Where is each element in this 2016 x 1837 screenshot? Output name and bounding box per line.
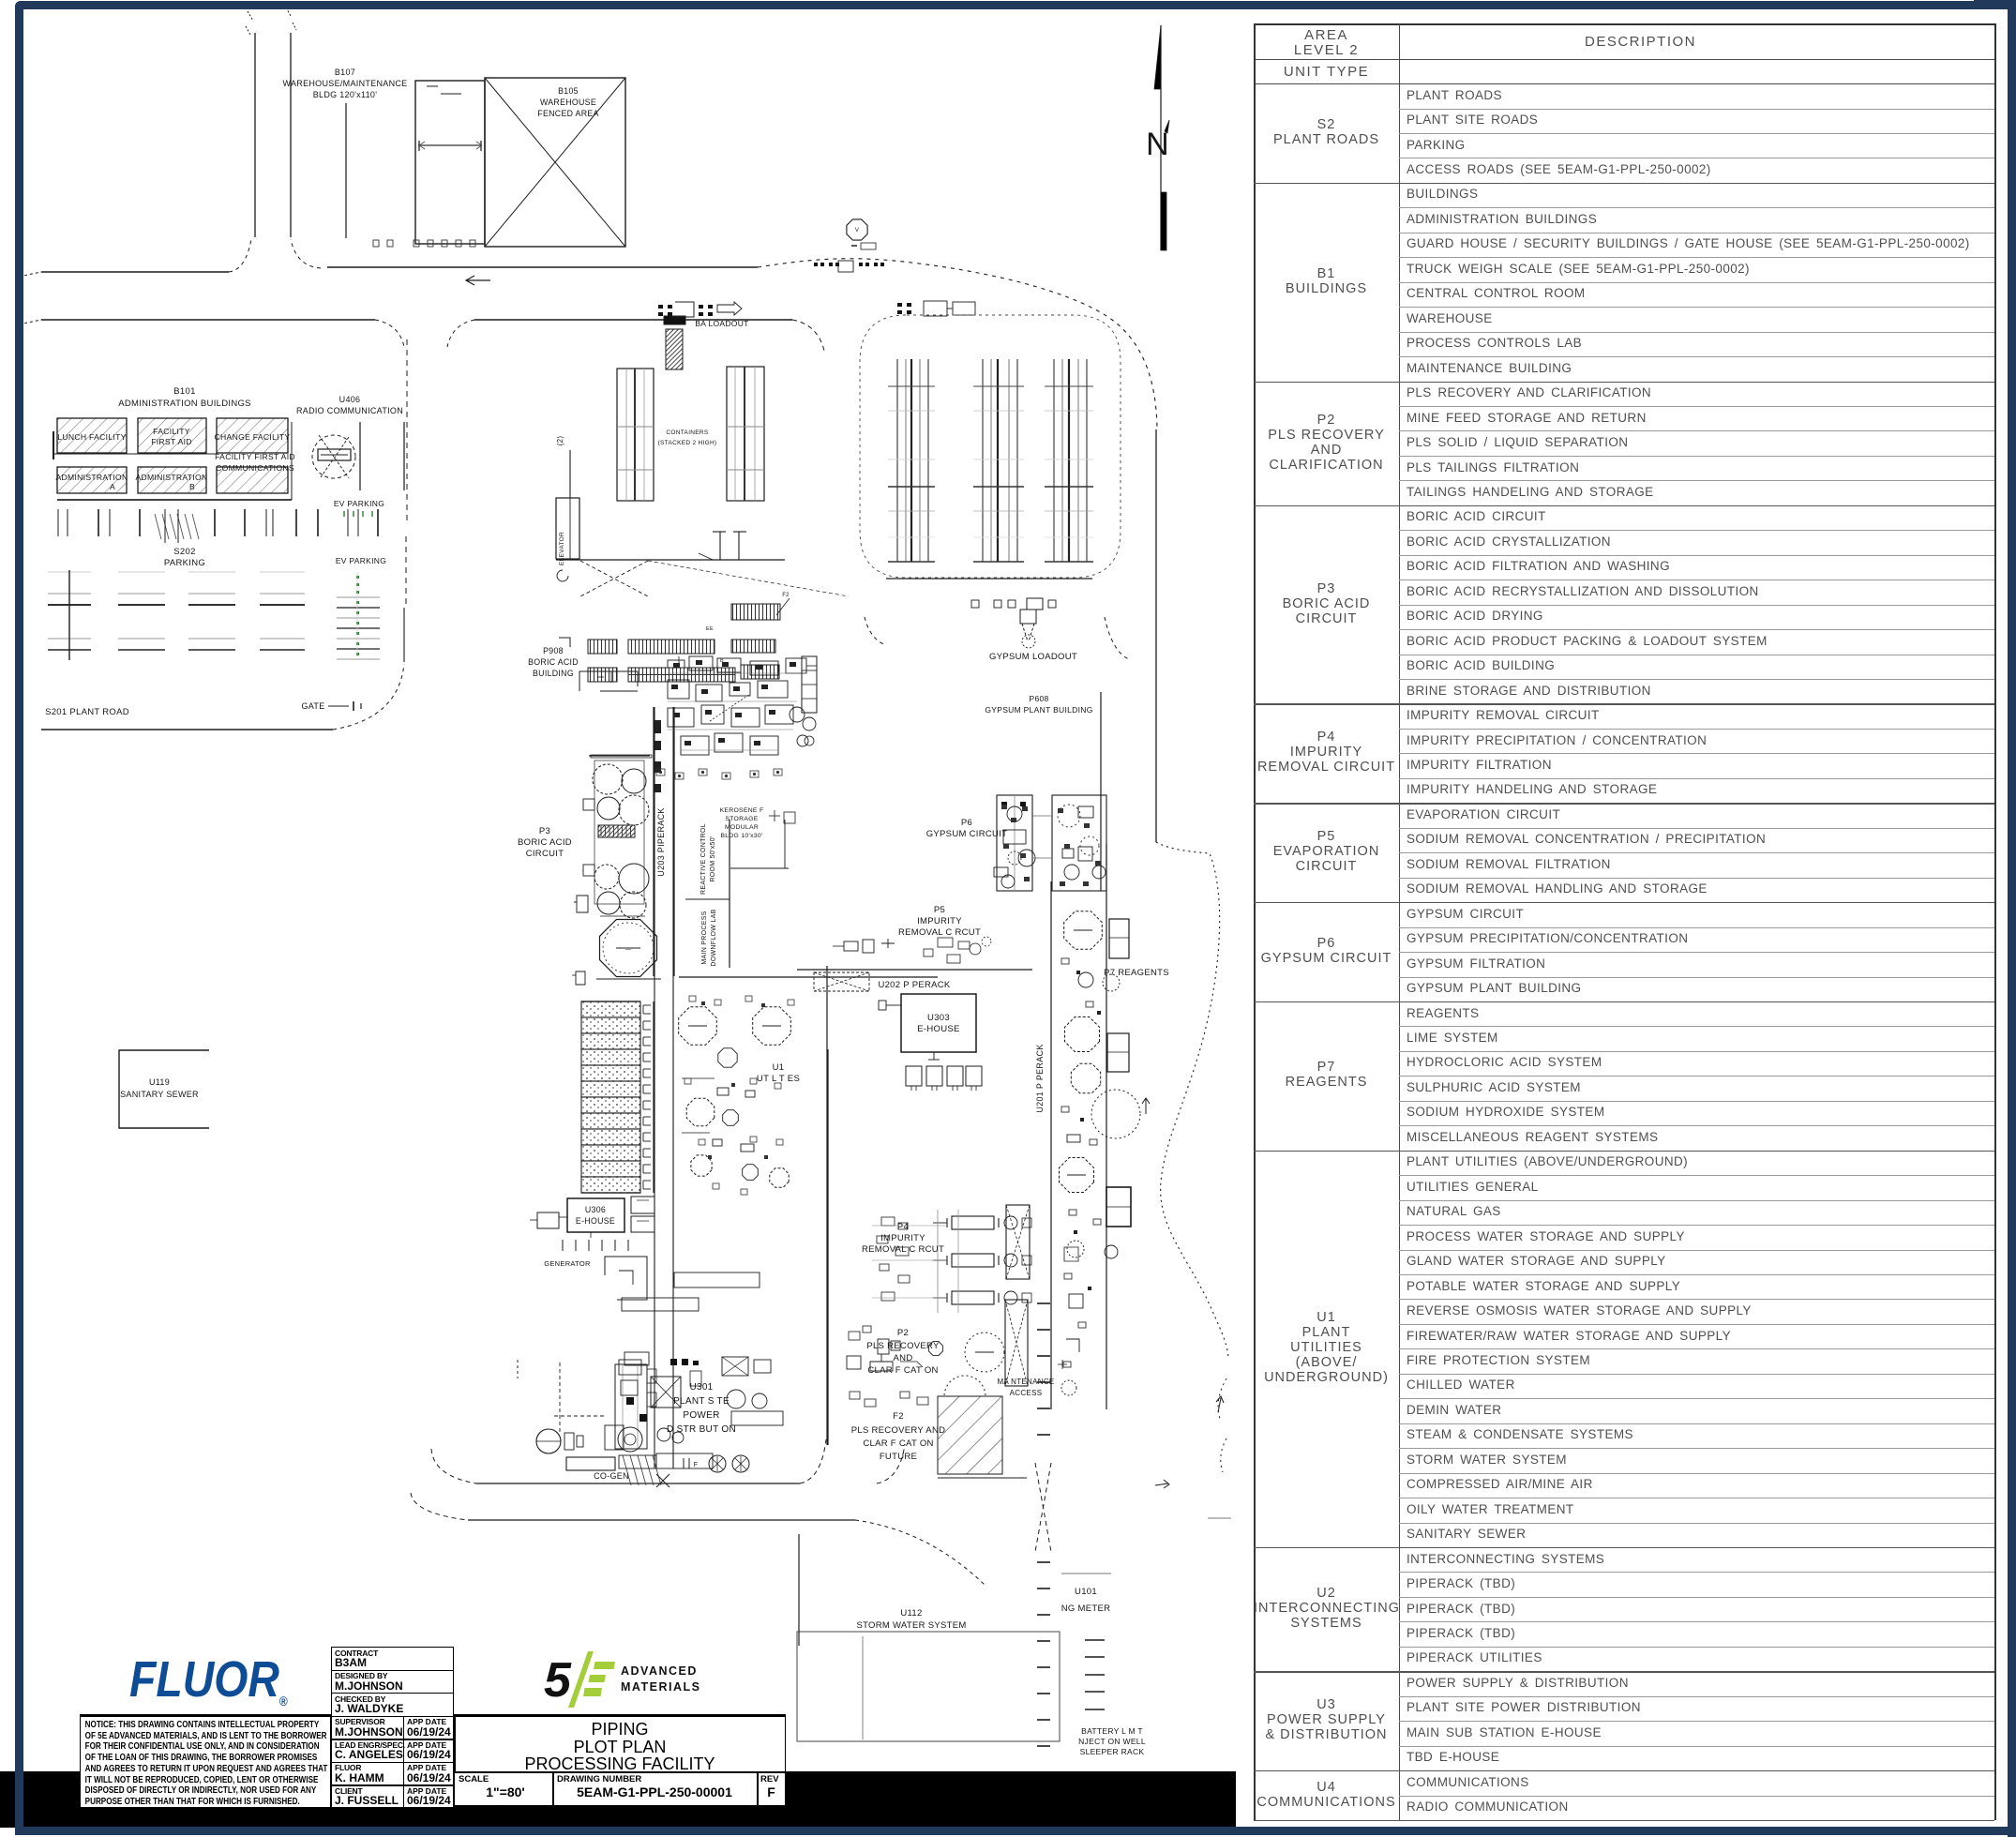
svg-text:NJECT ON WELL: NJECT ON WELL [1078,1737,1146,1746]
svg-text:MATERIALS: MATERIALS [621,1680,701,1694]
svg-text:PLANT S TE: PLANT S TE [673,1396,730,1407]
svg-text:P6: P6 [961,818,972,828]
svg-text:DOWNFLOW LAB: DOWNFLOW LAB [711,909,717,966]
svg-text:EV PARKING: EV PARKING [336,556,386,565]
svg-text:P908: P908 [543,646,564,655]
svg-text:COMMUNICATIONS: COMMUNICATIONS [216,463,294,473]
svg-text:IMPURITY: IMPURITY [880,1233,925,1243]
svg-text:FACILITY FIRST AID: FACILITY FIRST AID [215,452,295,461]
svg-text:U112: U112 [900,1608,922,1619]
svg-text:U201 P PERACK: U201 P PERACK [1035,1044,1045,1112]
svg-text:CIRCUIT: CIRCUIT [526,849,564,859]
svg-text:PLS RECOVERY AND: PLS RECOVERY AND [851,1425,946,1436]
svg-text:MODULAR: MODULAR [725,824,759,831]
svg-text:RADIO COMMUNICATION: RADIO COMMUNICATION [296,406,403,415]
svg-text:B: B [189,482,195,491]
svg-text:ADVANCED: ADVANCED [621,1664,698,1678]
svg-text:REMOVAL C RCUT: REMOVAL C RCUT [862,1244,944,1255]
svg-text:BA LOADOUT: BA LOADOUT [695,319,748,328]
svg-text:GYPSUM CIRCUIT: GYPSUM CIRCUIT [926,829,1008,839]
svg-text:U1: U1 [773,1062,785,1073]
svg-text:BATTERY L M T: BATTERY L M T [1081,1726,1143,1736]
svg-text:B101: B101 [173,386,195,397]
svg-text:ACCESS: ACCESS [1010,1389,1043,1397]
svg-text:ROOM 50'x50': ROOM 50'x50' [710,836,716,881]
svg-text:GATE: GATE [301,701,324,711]
svg-text:P3: P3 [539,826,550,836]
svg-text:REACTIVE CONTROL: REACTIVE CONTROL [700,823,707,895]
svg-text:WAREHOUSE: WAREHOUSE [540,98,596,107]
svg-text:GYPSUM LOADOUT: GYPSUM LOADOUT [989,652,1077,662]
svg-text:CLAR F CAT ON: CLAR F CAT ON [867,1365,938,1376]
svg-text:U202 P PERACK: U202 P PERACK [878,980,950,990]
svg-text:MAIN PROCESS: MAIN PROCESS [701,911,708,964]
svg-text:STORM WATER SYSTEM: STORM WATER SYSTEM [856,1620,966,1631]
svg-text:P608: P608 [1029,694,1048,703]
svg-text:CLAR F CAT ON: CLAR F CAT ON [863,1438,933,1449]
svg-text:ADMINISTRATION BUILDINGS: ADMINISTRATION BUILDINGS [118,399,251,409]
svg-text:SLEEPER RACK: SLEEPER RACK [1080,1747,1145,1756]
svg-text:CHANGE FACILITY: CHANGE FACILITY [215,432,291,442]
svg-text:POWER: POWER [683,1410,719,1421]
svg-text:A: A [110,482,115,491]
svg-text:E-HOUSE: E-HOUSE [917,1024,959,1034]
svg-text:FACILITY: FACILITY [153,427,190,436]
svg-text:S201 PLANT ROAD: S201 PLANT ROAD [45,707,129,717]
svg-text:U101: U101 [1075,1587,1097,1597]
svg-text:REMOVAL C RCUT: REMOVAL C RCUT [898,927,981,938]
svg-text:S202: S202 [173,547,195,557]
svg-text:BLDG 120'x110': BLDG 120'x110' [313,90,378,99]
svg-text:CONTAINERS: CONTAINERS [666,429,708,436]
svg-text:SANITARY SEWER: SANITARY SEWER [120,1090,199,1099]
svg-text:FIRST AID: FIRST AID [151,437,192,446]
svg-text:BLDG 10'x30': BLDG 10'x30' [720,833,762,839]
svg-text:—: — [625,947,631,953]
svg-text:EV PARKING: EV PARKING [334,499,384,508]
svg-text:BORIC ACID: BORIC ACID [518,837,572,848]
svg-text:U119: U119 [149,1077,170,1087]
svg-text:U203 PIPERACK: U203 PIPERACK [656,807,666,876]
svg-text:U306: U306 [585,1205,606,1214]
svg-text:KEROSENE F: KEROSENE F [720,807,764,814]
svg-text:P5: P5 [934,905,945,915]
svg-text:D STR BUT ON: D STR BUT ON [667,1424,736,1435]
svg-text:F: F [694,1462,699,1468]
svg-text:P4: P4 [897,1222,909,1232]
svg-text:V: V [855,228,859,233]
svg-text:UT L T ES: UT L T ES [757,1074,800,1084]
svg-text:FENCED AREA: FENCED AREA [537,109,598,118]
svg-text:BORIC ACID: BORIC ACID [528,657,579,667]
svg-text:E-HOUSE: E-HOUSE [576,1216,615,1226]
svg-text:P7 REAGENTS: P7 REAGENTS [1104,968,1169,978]
svg-text:B107: B107 [335,68,355,77]
svg-text:U406: U406 [339,395,361,404]
svg-text:P2: P2 [897,1328,909,1338]
svg-text:B105: B105 [558,86,579,96]
svg-text:U303: U303 [927,1013,950,1023]
svg-text:F2: F2 [893,1411,904,1422]
svg-text:STORAGE: STORAGE [725,816,758,822]
svg-text:WAREHOUSE/MAINTENANCE: WAREHOUSE/MAINTENANCE [283,79,408,88]
svg-text:5: 5 [544,1653,572,1708]
svg-text:(STACKED 2 HIGH): (STACKED 2 HIGH) [658,440,717,446]
svg-text:GENERATOR: GENERATOR [544,1259,591,1268]
svg-text:FUTURE: FUTURE [880,1452,917,1462]
svg-text:F2: F2 [782,593,790,598]
svg-text:BUILDING: BUILDING [533,669,574,678]
svg-text:ADMINISTRATION: ADMINISTRATION [135,473,207,482]
svg-text:(2): (2) [556,436,564,446]
svg-text:PARKING: PARKING [164,558,205,568]
svg-text:LUNCH FACILITY: LUNCH FACILITY [57,432,126,442]
svg-text:NG METER: NG METER [1061,1604,1111,1614]
svg-text:IMPURITY: IMPURITY [917,916,962,926]
svg-text:CO-GEN: CO-GEN [594,1471,629,1481]
svg-text:ADMINISTRATION: ADMINISTRATION [55,473,128,482]
svg-text:U301: U301 [689,1382,713,1393]
svg-text:EE: EE [706,626,714,632]
svg-text:GYPSUM PLANT BUILDING: GYPSUM PLANT BUILDING [985,705,1092,715]
